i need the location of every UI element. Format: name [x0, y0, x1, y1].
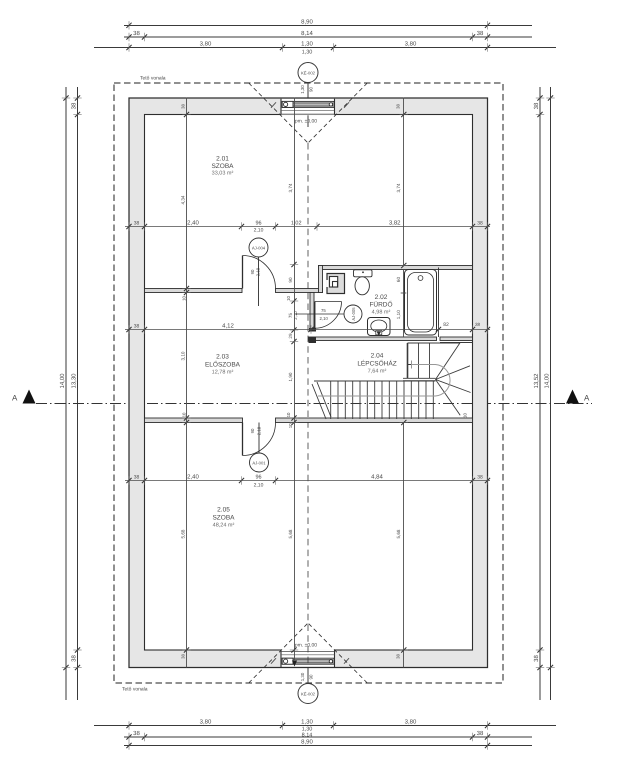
svg-text:2,10: 2,10: [254, 483, 264, 489]
svg-text:5,68: 5,68: [180, 529, 185, 538]
svg-text:4,98 m²: 4,98 m²: [372, 310, 391, 316]
svg-text:82: 82: [443, 322, 449, 328]
svg-text:13,30: 13,30: [71, 373, 78, 389]
svg-text:AJ-005: AJ-005: [351, 307, 356, 321]
svg-text:2,40: 2,40: [187, 220, 199, 227]
svg-text:38: 38: [475, 322, 481, 327]
svg-text:2,10: 2,10: [256, 267, 261, 276]
svg-text:96: 96: [255, 475, 261, 481]
svg-text:5,68: 5,68: [288, 529, 293, 538]
svg-text:LÉPCSŐHÁZ: LÉPCSŐHÁZ: [357, 360, 396, 368]
svg-text:2,10: 2,10: [320, 316, 329, 321]
svg-text:1,02: 1,02: [291, 221, 302, 227]
svg-text:60: 60: [396, 277, 401, 283]
svg-text:2,40: 2,40: [187, 474, 199, 481]
svg-text:12,78 m²: 12,78 m²: [212, 370, 234, 376]
svg-text:2.03: 2.03: [216, 354, 229, 361]
svg-text:13,52: 13,52: [533, 373, 540, 389]
svg-text:KÉ-002: KÉ-002: [301, 692, 316, 697]
svg-text:38: 38: [180, 654, 185, 659]
svg-text:38: 38: [533, 655, 540, 662]
svg-text:pm. ±0,00: pm. ±0,00: [295, 118, 317, 124]
svg-text:ELŐSZOBA: ELŐSZOBA: [205, 361, 241, 369]
svg-text:14,00: 14,00: [59, 373, 66, 389]
svg-text:3,82: 3,82: [389, 220, 401, 227]
svg-text:38: 38: [477, 730, 484, 737]
svg-text:FÜRDŐ: FÜRDŐ: [369, 301, 392, 309]
svg-text:A: A: [584, 394, 590, 403]
svg-text:SZOBA: SZOBA: [211, 163, 234, 170]
svg-text:4,12: 4,12: [222, 323, 234, 330]
svg-text:2,10: 2,10: [293, 311, 298, 320]
svg-text:38: 38: [134, 221, 140, 227]
svg-text:3,80: 3,80: [405, 41, 417, 48]
svg-text:1,90: 1,90: [288, 372, 293, 381]
svg-text:29: 29: [288, 333, 293, 339]
svg-text:38: 38: [134, 475, 140, 481]
svg-text:1,30: 1,30: [300, 672, 305, 681]
svg-text:pm. ±0,00: pm. ±0,00: [295, 643, 317, 649]
svg-text:96: 96: [255, 221, 261, 227]
svg-text:90: 90: [309, 87, 314, 92]
svg-text:90: 90: [250, 428, 255, 433]
svg-text:10: 10: [182, 296, 187, 301]
svg-text:1,30: 1,30: [301, 41, 313, 48]
svg-text:3,80: 3,80: [200, 719, 212, 726]
svg-text:10: 10: [463, 413, 468, 418]
svg-text:38: 38: [396, 104, 401, 109]
svg-text:2,10: 2,10: [254, 228, 264, 234]
svg-text:38: 38: [477, 221, 483, 227]
svg-text:8,14: 8,14: [301, 30, 313, 37]
svg-text:38: 38: [396, 654, 401, 659]
svg-text:Tető vonala: Tető vonala: [122, 687, 148, 693]
svg-text:5,68: 5,68: [396, 529, 401, 538]
svg-text:10: 10: [286, 296, 291, 301]
svg-text:33,03 m²: 33,03 m²: [212, 171, 234, 177]
svg-text:3,74: 3,74: [396, 183, 401, 192]
svg-text:3,10: 3,10: [180, 351, 185, 360]
svg-text:Tető vonala: Tető vonala: [140, 76, 166, 82]
svg-text:AJ-001: AJ-001: [252, 461, 266, 466]
svg-text:38: 38: [533, 102, 540, 109]
svg-text:7,64 m²: 7,64 m²: [368, 369, 387, 375]
svg-text:4,84: 4,84: [371, 474, 383, 481]
svg-text:2.01: 2.01: [216, 156, 229, 163]
svg-text:75: 75: [321, 308, 326, 313]
svg-text:38: 38: [180, 104, 185, 109]
svg-text:90: 90: [288, 277, 293, 283]
svg-text:2.04: 2.04: [371, 353, 384, 360]
svg-text:3,80: 3,80: [405, 719, 417, 726]
svg-text:38: 38: [133, 730, 140, 737]
svg-text:AJ-004: AJ-004: [252, 246, 266, 251]
svg-text:8,90: 8,90: [301, 18, 313, 25]
svg-text:38: 38: [71, 102, 78, 109]
svg-text:38: 38: [71, 655, 78, 662]
svg-text:1,10: 1,10: [396, 310, 401, 319]
svg-text:1,30: 1,30: [301, 719, 313, 726]
svg-text:1,30: 1,30: [302, 49, 313, 55]
svg-text:1,30: 1,30: [300, 85, 305, 94]
svg-text:38: 38: [134, 324, 140, 330]
svg-text:KÉ-002: KÉ-002: [301, 71, 316, 76]
svg-text:SZOBA: SZOBA: [212, 515, 235, 522]
svg-text:2.05: 2.05: [217, 507, 230, 514]
svg-text:38: 38: [477, 475, 483, 481]
svg-text:3,74: 3,74: [288, 183, 293, 192]
svg-text:10: 10: [182, 412, 187, 417]
svg-text:14,00: 14,00: [544, 373, 551, 389]
svg-text:90: 90: [309, 674, 314, 679]
svg-text:38: 38: [133, 30, 140, 37]
svg-text:48,24 m²: 48,24 m²: [213, 523, 235, 529]
svg-text:90: 90: [250, 269, 255, 274]
svg-text:4,34: 4,34: [180, 195, 185, 204]
svg-text:8,14: 8,14: [302, 732, 313, 738]
svg-text:38: 38: [477, 30, 484, 37]
svg-text:3,80: 3,80: [200, 41, 212, 48]
svg-text:10: 10: [286, 412, 291, 417]
svg-text:8,90: 8,90: [301, 739, 313, 746]
svg-text:A: A: [12, 394, 18, 403]
svg-text:10: 10: [288, 423, 293, 428]
svg-text:2.02: 2.02: [375, 294, 388, 301]
